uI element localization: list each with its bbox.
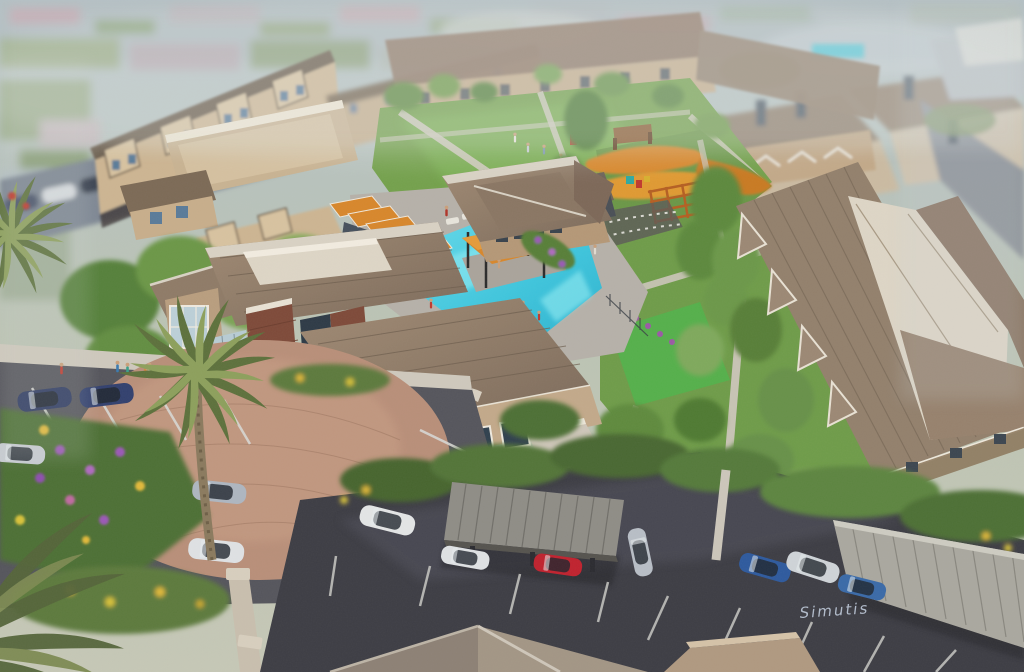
rendering-canvas: Simutis: [0, 0, 1024, 672]
grain-overlay: [0, 0, 1024, 672]
aerial-rendering: Simutis: [0, 0, 1024, 672]
